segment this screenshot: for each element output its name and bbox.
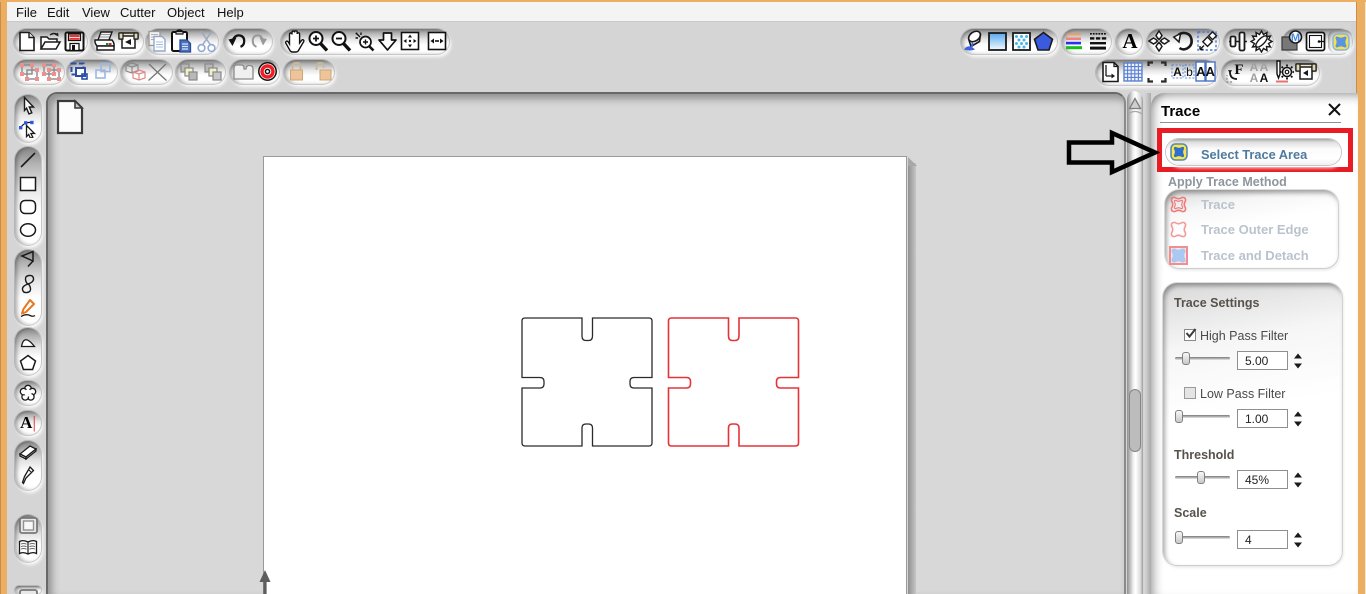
svg-text:b: b	[1186, 65, 1193, 79]
svg-text:A: A	[1196, 64, 1206, 79]
svg-text:A: A	[1205, 64, 1215, 79]
svg-text:F: F	[1234, 62, 1243, 78]
svg-text:M: M	[1291, 32, 1300, 44]
svg-text:A: A	[1173, 65, 1182, 79]
svg-text:A: A	[1250, 71, 1259, 83]
svg-text:A: A	[1260, 71, 1269, 83]
